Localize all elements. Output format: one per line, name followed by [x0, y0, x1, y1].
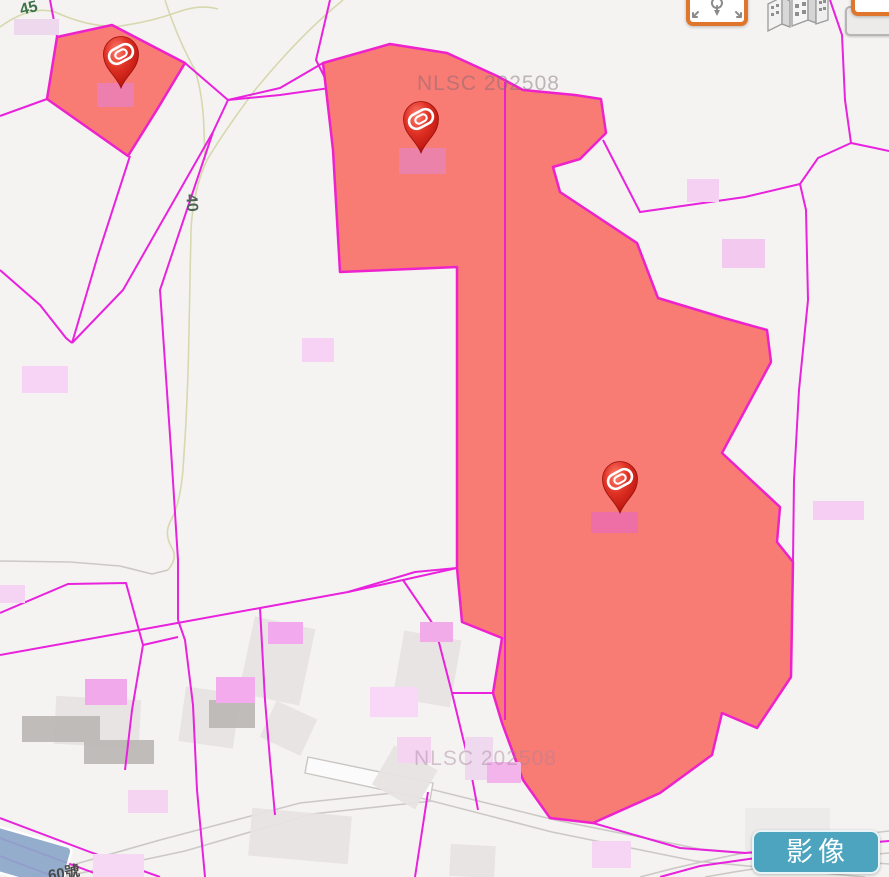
blurred-label: [14, 19, 59, 35]
contour-elevation-label: 40: [181, 193, 200, 212]
blurred-label: [128, 790, 168, 813]
blurred-label: [592, 841, 631, 868]
blurred-label: [722, 239, 765, 268]
blurred-label: [216, 677, 255, 703]
blurred-label: [85, 679, 127, 705]
watermark: NLSC 202508: [414, 747, 557, 771]
buildings-3d-control[interactable]: [762, 0, 834, 34]
imagery-basemap-button[interactable]: 影像: [752, 830, 880, 874]
watermark: NLSC 202508: [417, 72, 560, 96]
blurred-label: [813, 501, 864, 520]
blurred-label: [268, 622, 303, 644]
map-canvas[interactable]: [0, 0, 889, 877]
blurred-label: [97, 83, 134, 107]
blurred-label: [0, 585, 25, 603]
locate-extent-button[interactable]: [686, 0, 748, 26]
blurred-label: [687, 179, 719, 202]
blurred-label: [399, 148, 446, 174]
layers-button[interactable]: [851, 0, 889, 16]
blurred-label: [420, 622, 453, 642]
blurred-label: [370, 687, 418, 717]
blurred-label: [22, 366, 68, 393]
censored-text: [22, 716, 100, 742]
blurred-label: [302, 338, 334, 362]
censored-text: [209, 700, 255, 728]
blurred-label: [591, 512, 638, 533]
locate-pin-icon: [690, 0, 744, 22]
blurred-label: [93, 854, 144, 877]
map-viewer: NLSC 202508 NLSC 202508 45 40 60號: [0, 0, 889, 877]
censored-text: [84, 740, 154, 764]
buildings-3d-icon: [762, 0, 834, 34]
